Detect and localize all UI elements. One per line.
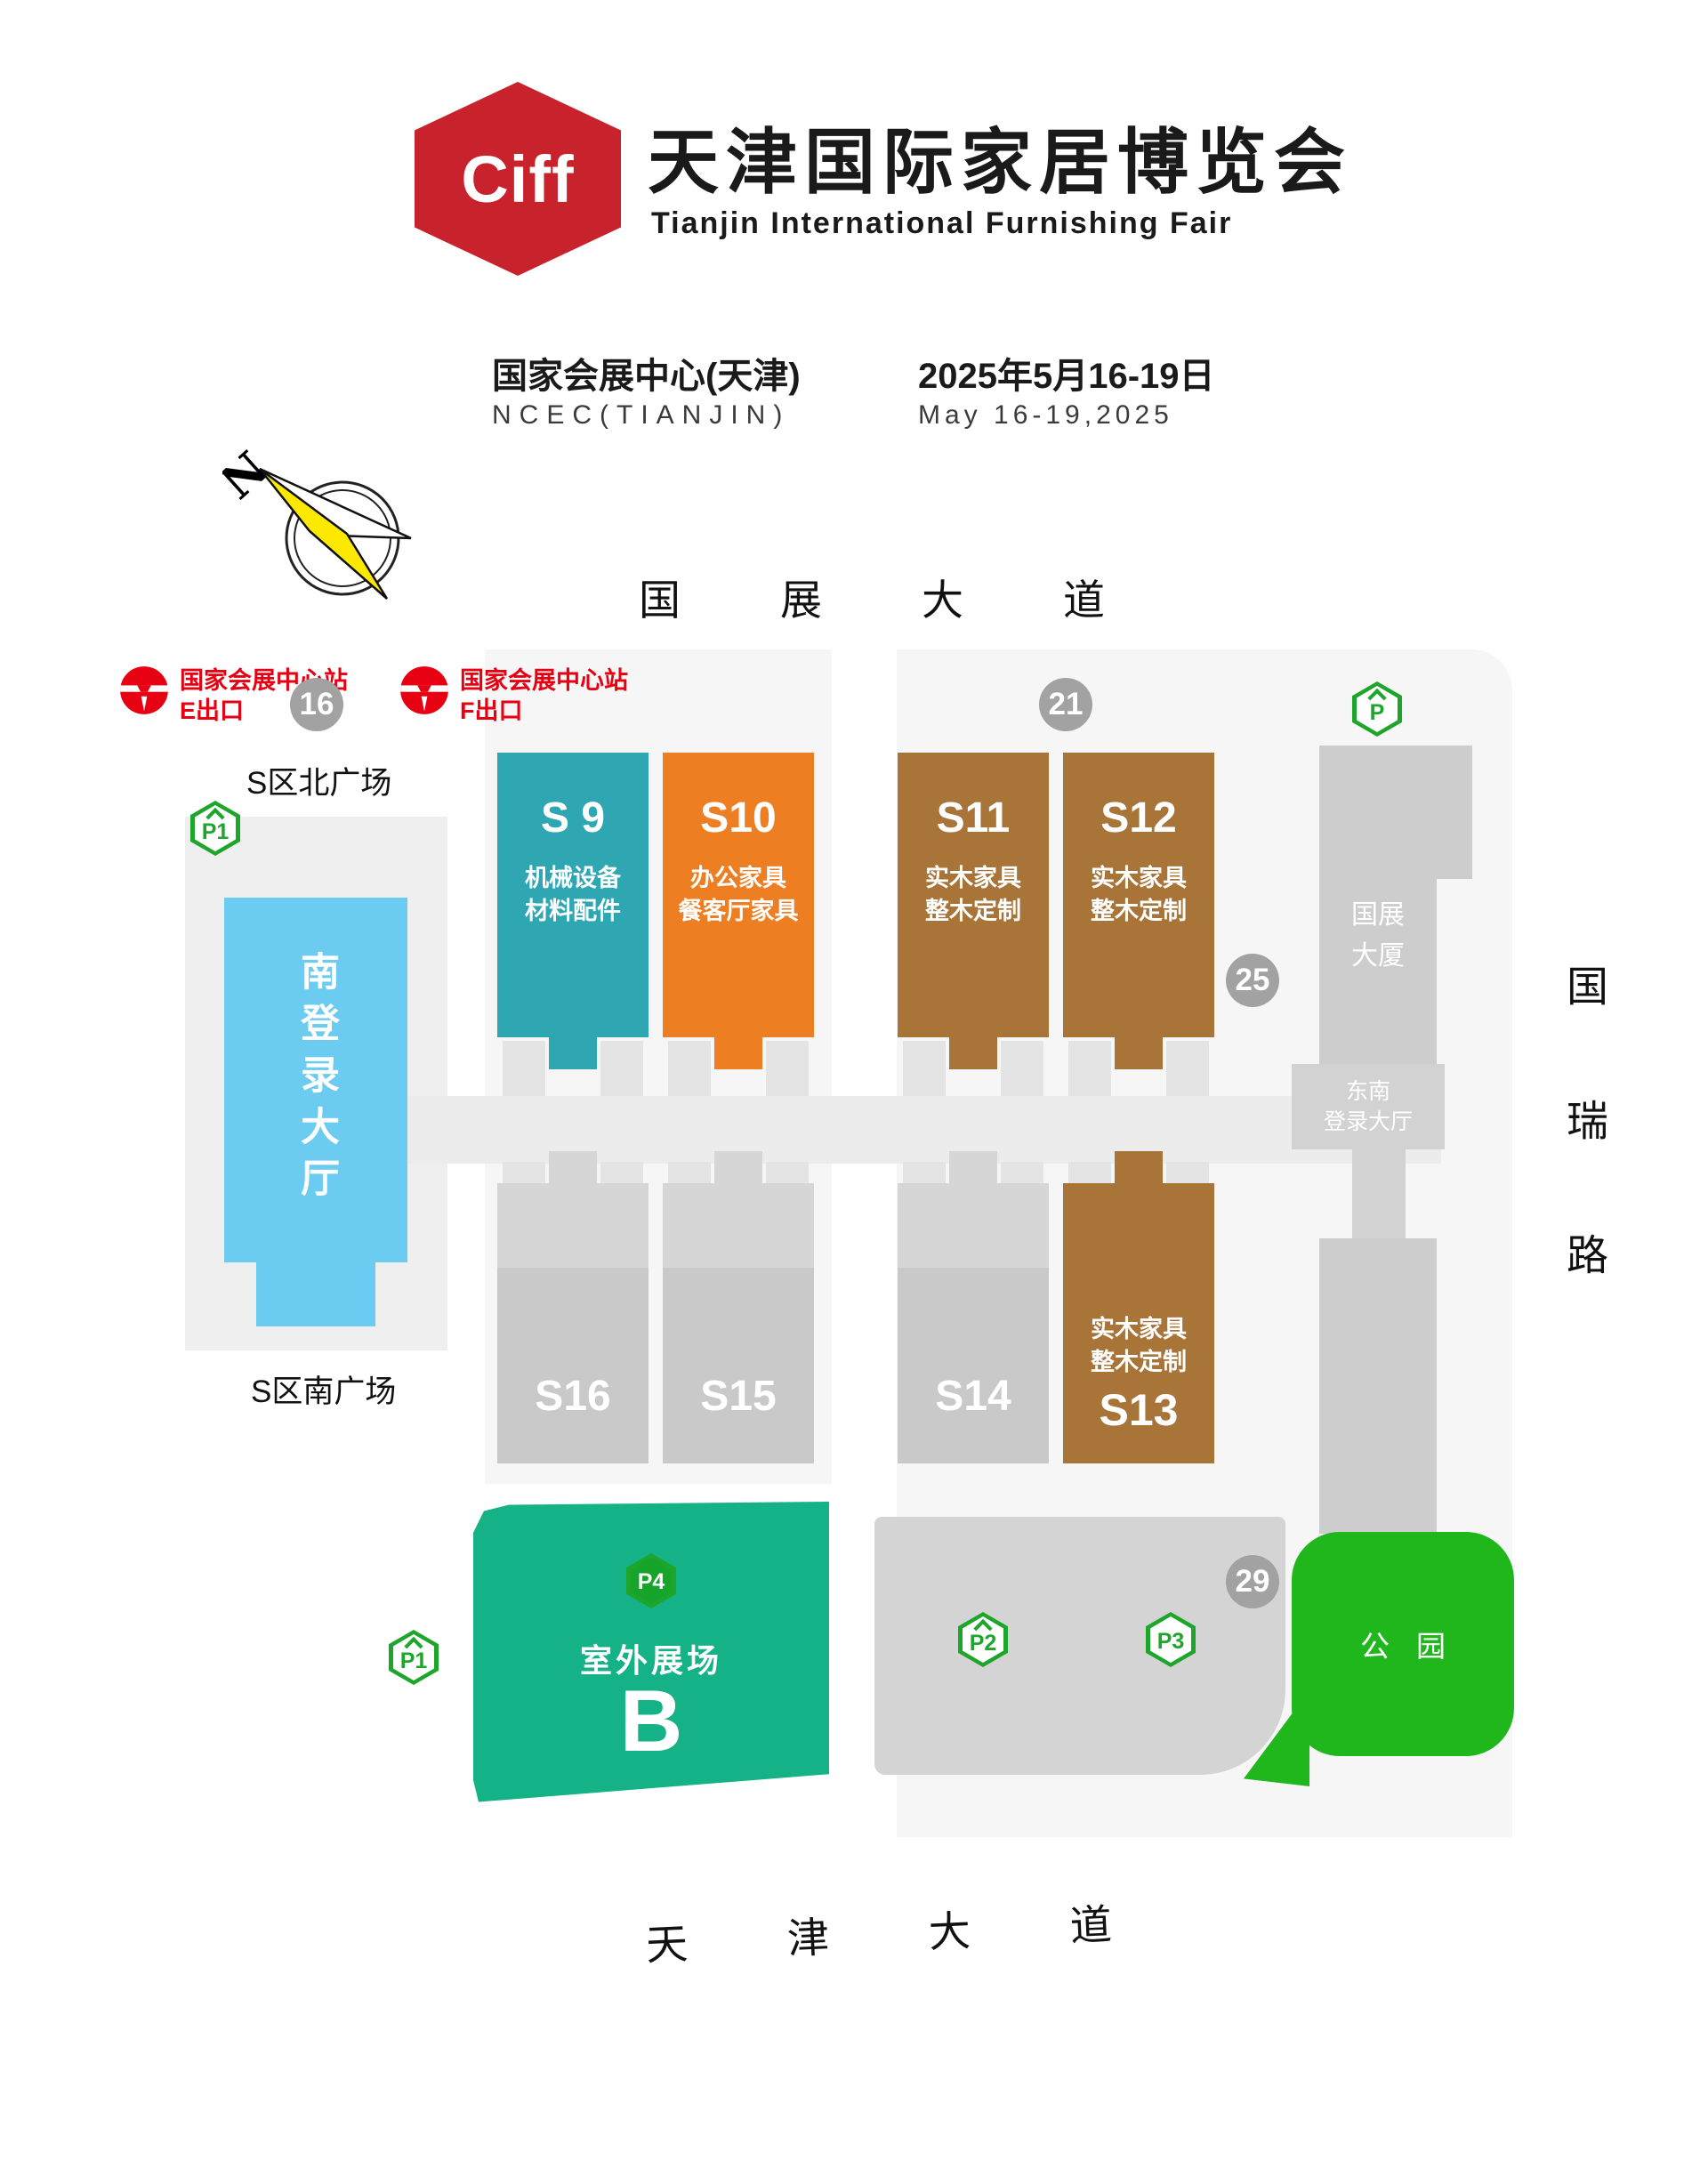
hall-s15: S15	[663, 1183, 814, 1463]
hall-s9-entrance-tab	[549, 1036, 597, 1069]
parking-p2-icon: P2	[958, 1612, 1008, 1667]
event-date-en: May 16-19,2025	[918, 400, 1173, 431]
hall-s13-entrance-tab	[1115, 1151, 1163, 1185]
hall-s13-category-2: 整木定制	[1063, 1346, 1214, 1379]
park-label: 公园	[1333, 1623, 1472, 1665]
gate-25-marker: 25	[1226, 954, 1279, 1007]
building-se-lower	[1319, 1238, 1437, 1534]
ciff-logo-text: Ciff	[461, 141, 574, 217]
hall-s9-category-2: 材料配件	[497, 895, 649, 928]
ciff-logo-icon: Ciff	[415, 82, 621, 276]
road-guorui-road: 国瑞路	[1553, 964, 1615, 1367]
hall-s12-entrance-tab	[1115, 1036, 1163, 1069]
entrance-block	[668, 1041, 711, 1096]
venue-name: 国家会展中心(天津)	[492, 347, 801, 399]
hall-s9-category-1: 机械设备	[497, 862, 649, 895]
park-area: 公园	[1292, 1532, 1514, 1756]
building-south-registration-hall-foot	[256, 1262, 375, 1326]
page-title: 天津国际家居博览会	[648, 105, 1352, 208]
hall-s14-entrance-tab	[949, 1151, 997, 1185]
hall-s13-id: S13	[1063, 1384, 1214, 1436]
building-guozhan-tower-annex	[1437, 746, 1472, 879]
building-guozhan-tower: 国展 大厦	[1319, 746, 1437, 1096]
gate-21-marker: 21	[1039, 678, 1092, 731]
road-tianjin-avenue: 天津大道	[644, 1885, 1212, 1972]
hall-s14-id: S14	[898, 1372, 1049, 1421]
hall-s11-id: S11	[898, 794, 1049, 842]
hall-s11: S11 实木家具 整木定制	[898, 753, 1049, 1037]
building-south-registration-hall: 南登录大厅	[224, 898, 407, 1262]
venue-name-en: NCEC(TIANJIN)	[492, 400, 790, 431]
hall-s10: S10 办公家具 餐客厅家具	[663, 753, 814, 1037]
parking-p4-icon: P4	[626, 1553, 676, 1608]
hall-s11-category-2: 整木定制	[898, 895, 1049, 928]
compass-north-label: N	[222, 449, 278, 510]
entrance-block	[1068, 1041, 1111, 1096]
entrance-block	[1166, 1041, 1209, 1096]
entrance-block	[903, 1041, 946, 1096]
fair-map-page: Ciff 天津国际家居博览会 Tianjin International Fur…	[0, 0, 1708, 2160]
metro-logo-icon	[399, 665, 449, 715]
entrance-block	[503, 1041, 545, 1096]
metro-exit-label: F出口	[460, 696, 628, 726]
parking-p4-label: P4	[626, 1553, 676, 1608]
se-lobby-connector	[1352, 1149, 1406, 1238]
building-se-registration-hall: 东南 登录大厅	[1292, 1064, 1445, 1149]
page-subtitle: Tianjin International Furnishing Fair	[651, 206, 1232, 241]
road-guozhan-avenue: 国展大道	[639, 566, 1204, 627]
hall-s13-category-1: 实木家具	[1063, 1313, 1214, 1346]
event-date: 2025年5月16-19日	[918, 347, 1215, 399]
hall-s11-entrance-tab	[949, 1036, 997, 1069]
north-plaza-label: S区北广场	[246, 758, 391, 803]
hall-s12: S12 实木家具 整木定制	[1063, 753, 1214, 1037]
hall-s10-category-1: 办公家具	[663, 862, 814, 895]
hall-s16-entrance-tab	[549, 1151, 597, 1185]
hall-s12-category-1: 实木家具	[1063, 862, 1214, 895]
hall-s12-category-2: 整木定制	[1063, 895, 1214, 928]
entrance-block	[766, 1041, 809, 1096]
se-lobby-line2: 登录大厅	[1324, 1107, 1413, 1137]
south-parking-lot-area	[874, 1517, 1285, 1775]
parking-p3-label: P3	[1146, 1612, 1196, 1667]
outdoor-exhibition-area-b: P4 室外展场 B	[473, 1502, 829, 1811]
gate-16-marker: 16	[290, 678, 343, 731]
se-lobby-line1: 东南	[1346, 1076, 1390, 1107]
hall-s9: S 9 机械设备 材料配件	[497, 753, 649, 1037]
parking-tower-icon: P	[1352, 681, 1402, 737]
hall-s15-entrance-tab	[714, 1151, 762, 1185]
hall-s16-id: S16	[497, 1372, 649, 1421]
entrance-block	[1001, 1041, 1043, 1096]
metro-exit-f: 国家会展中心站 F出口	[399, 665, 628, 726]
hall-s12-id: S12	[1063, 794, 1214, 842]
outdoor-area-letter: B	[473, 1671, 829, 1771]
hall-s13: 实木家具 整木定制 S13	[1063, 1183, 1214, 1463]
compass-icon: N	[222, 449, 454, 614]
hall-s10-id: S10	[663, 794, 814, 842]
hall-s15-id: S15	[663, 1372, 814, 1421]
entrance-block	[600, 1041, 643, 1096]
parking-p1-north-icon: P1	[190, 801, 240, 856]
hall-s16: S16	[497, 1183, 649, 1463]
south-plaza-label: S区南广场	[251, 1366, 396, 1412]
gate-29-marker: 29	[1226, 1555, 1279, 1608]
hall-s11-category-1: 实木家具	[898, 862, 1049, 895]
parking-p3-icon: P3	[1146, 1612, 1196, 1667]
parking-p1-south-icon: P1	[389, 1630, 439, 1685]
hall-s10-category-2: 餐客厅家具	[663, 895, 814, 928]
hall-s10-entrance-tab	[714, 1036, 762, 1069]
hall-s9-id: S 9	[497, 794, 649, 842]
central-corridor	[242, 1096, 1441, 1164]
south-lobby-label: 南登录大厅	[287, 951, 344, 1209]
tower-label-line1: 国展	[1319, 895, 1437, 936]
metro-logo-icon	[119, 665, 169, 715]
metro-station-name: 国家会展中心站	[460, 665, 628, 696]
tower-label-line2: 大厦	[1319, 936, 1437, 977]
hall-s14: S14	[898, 1183, 1049, 1463]
